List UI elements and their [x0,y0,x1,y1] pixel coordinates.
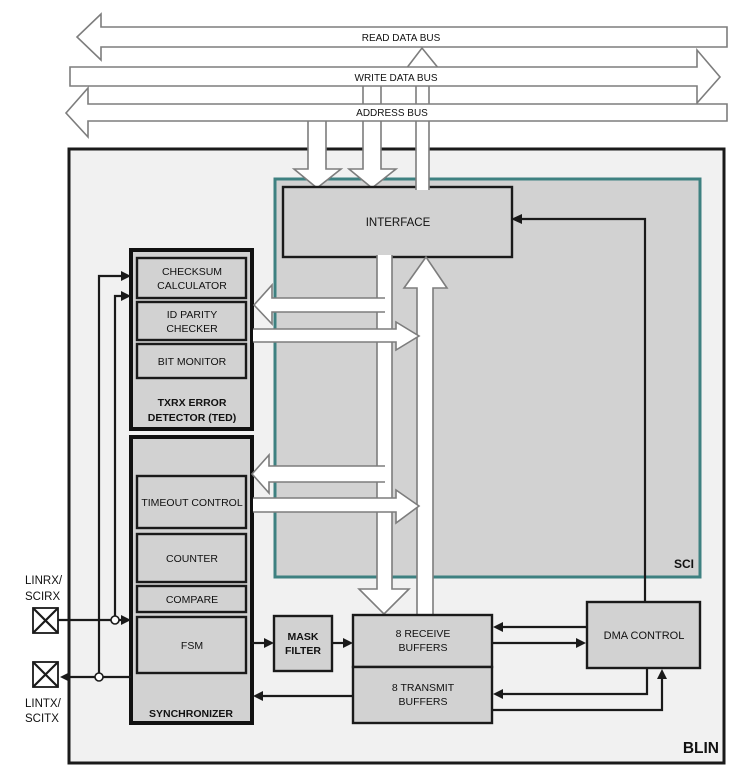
counter-label: COUNTER [166,553,218,565]
fsm-label: FSM [181,640,203,652]
receive-buffers-block [353,615,492,667]
checksum-calculator-label-1: CHECKSUM [162,266,222,278]
ted-label-2: DETECTOR (TED) [148,412,236,424]
transmit-buffers-block [353,667,492,723]
receive-buffers-label-1: 8 RECEIVE [396,628,451,640]
linrx-pin-icon [33,608,58,633]
dma-control-label: DMA CONTROL [604,630,685,642]
receive-buffers-label-2: BUFFERS [398,642,447,654]
linrx-pin-label-2: SCIRX [25,591,60,603]
write-to-interface-bus [349,84,396,188]
compare-label: COMPARE [166,594,218,606]
sci-label: SCI [674,557,694,571]
ted-label-1: TXRX ERROR [158,397,227,409]
write-data-bus-label: WRITE DATA BUS [355,73,438,84]
transmit-buffers-label-2: BUFFERS [398,696,447,708]
mask-filter-block [274,616,332,671]
id-parity-checker-label-2: CHECKER [166,323,218,335]
junction-dot [95,673,103,681]
interface-label: INTERFACE [366,217,431,229]
lintx-pin-icon [33,662,58,687]
checksum-calculator-label-2: CALCULATOR [157,280,227,292]
id-parity-checker-label-1: ID PARITY [167,309,218,321]
transmit-buffers-label-1: 8 TRANSMIT [392,682,455,694]
bit-monitor-label: BIT MONITOR [158,356,227,368]
timeout-control-label: TIMEOUT CONTROL [141,497,242,509]
junction-dot [111,616,119,624]
lintx-pin-label-2: SCITX [25,713,59,725]
linrx-pin-label-1: LINRX/ [25,575,63,587]
mask-filter-label-2: FILTER [285,645,321,657]
checksum-calculator-block [137,258,246,298]
synchronizer-label: SYNCHRONIZER [149,708,233,720]
diagram-canvas: READ DATA BUS WRITE DATA BUS ADDRESS BUS… [0,0,742,775]
read-data-bus-label: READ DATA BUS [362,33,441,44]
blin-block-diagram: READ DATA BUS WRITE DATA BUS ADDRESS BUS… [0,0,742,775]
blin-label: BLIN [683,740,719,757]
lintx-pin-label-1: LINTX/ [25,698,62,710]
mask-filter-label-1: MASK [288,631,319,643]
address-bus-label: ADDRESS BUS [356,108,428,119]
